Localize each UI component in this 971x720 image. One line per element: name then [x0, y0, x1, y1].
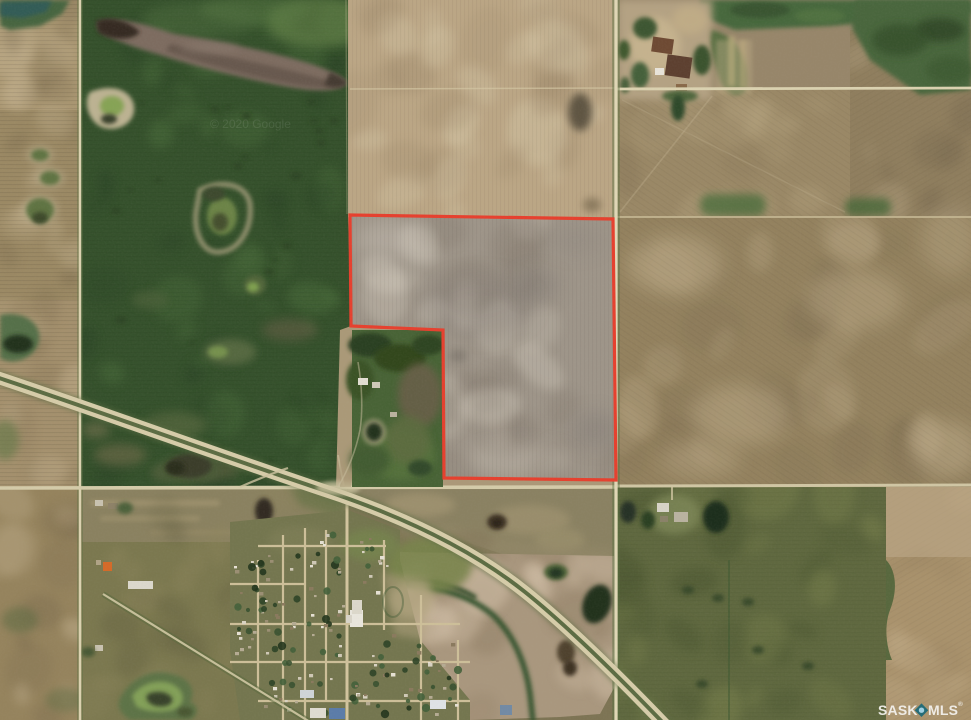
svg-text:MLS: MLS [928, 702, 958, 718]
svg-text:SASK: SASK [878, 702, 918, 718]
svg-text:®: ® [958, 700, 963, 708]
